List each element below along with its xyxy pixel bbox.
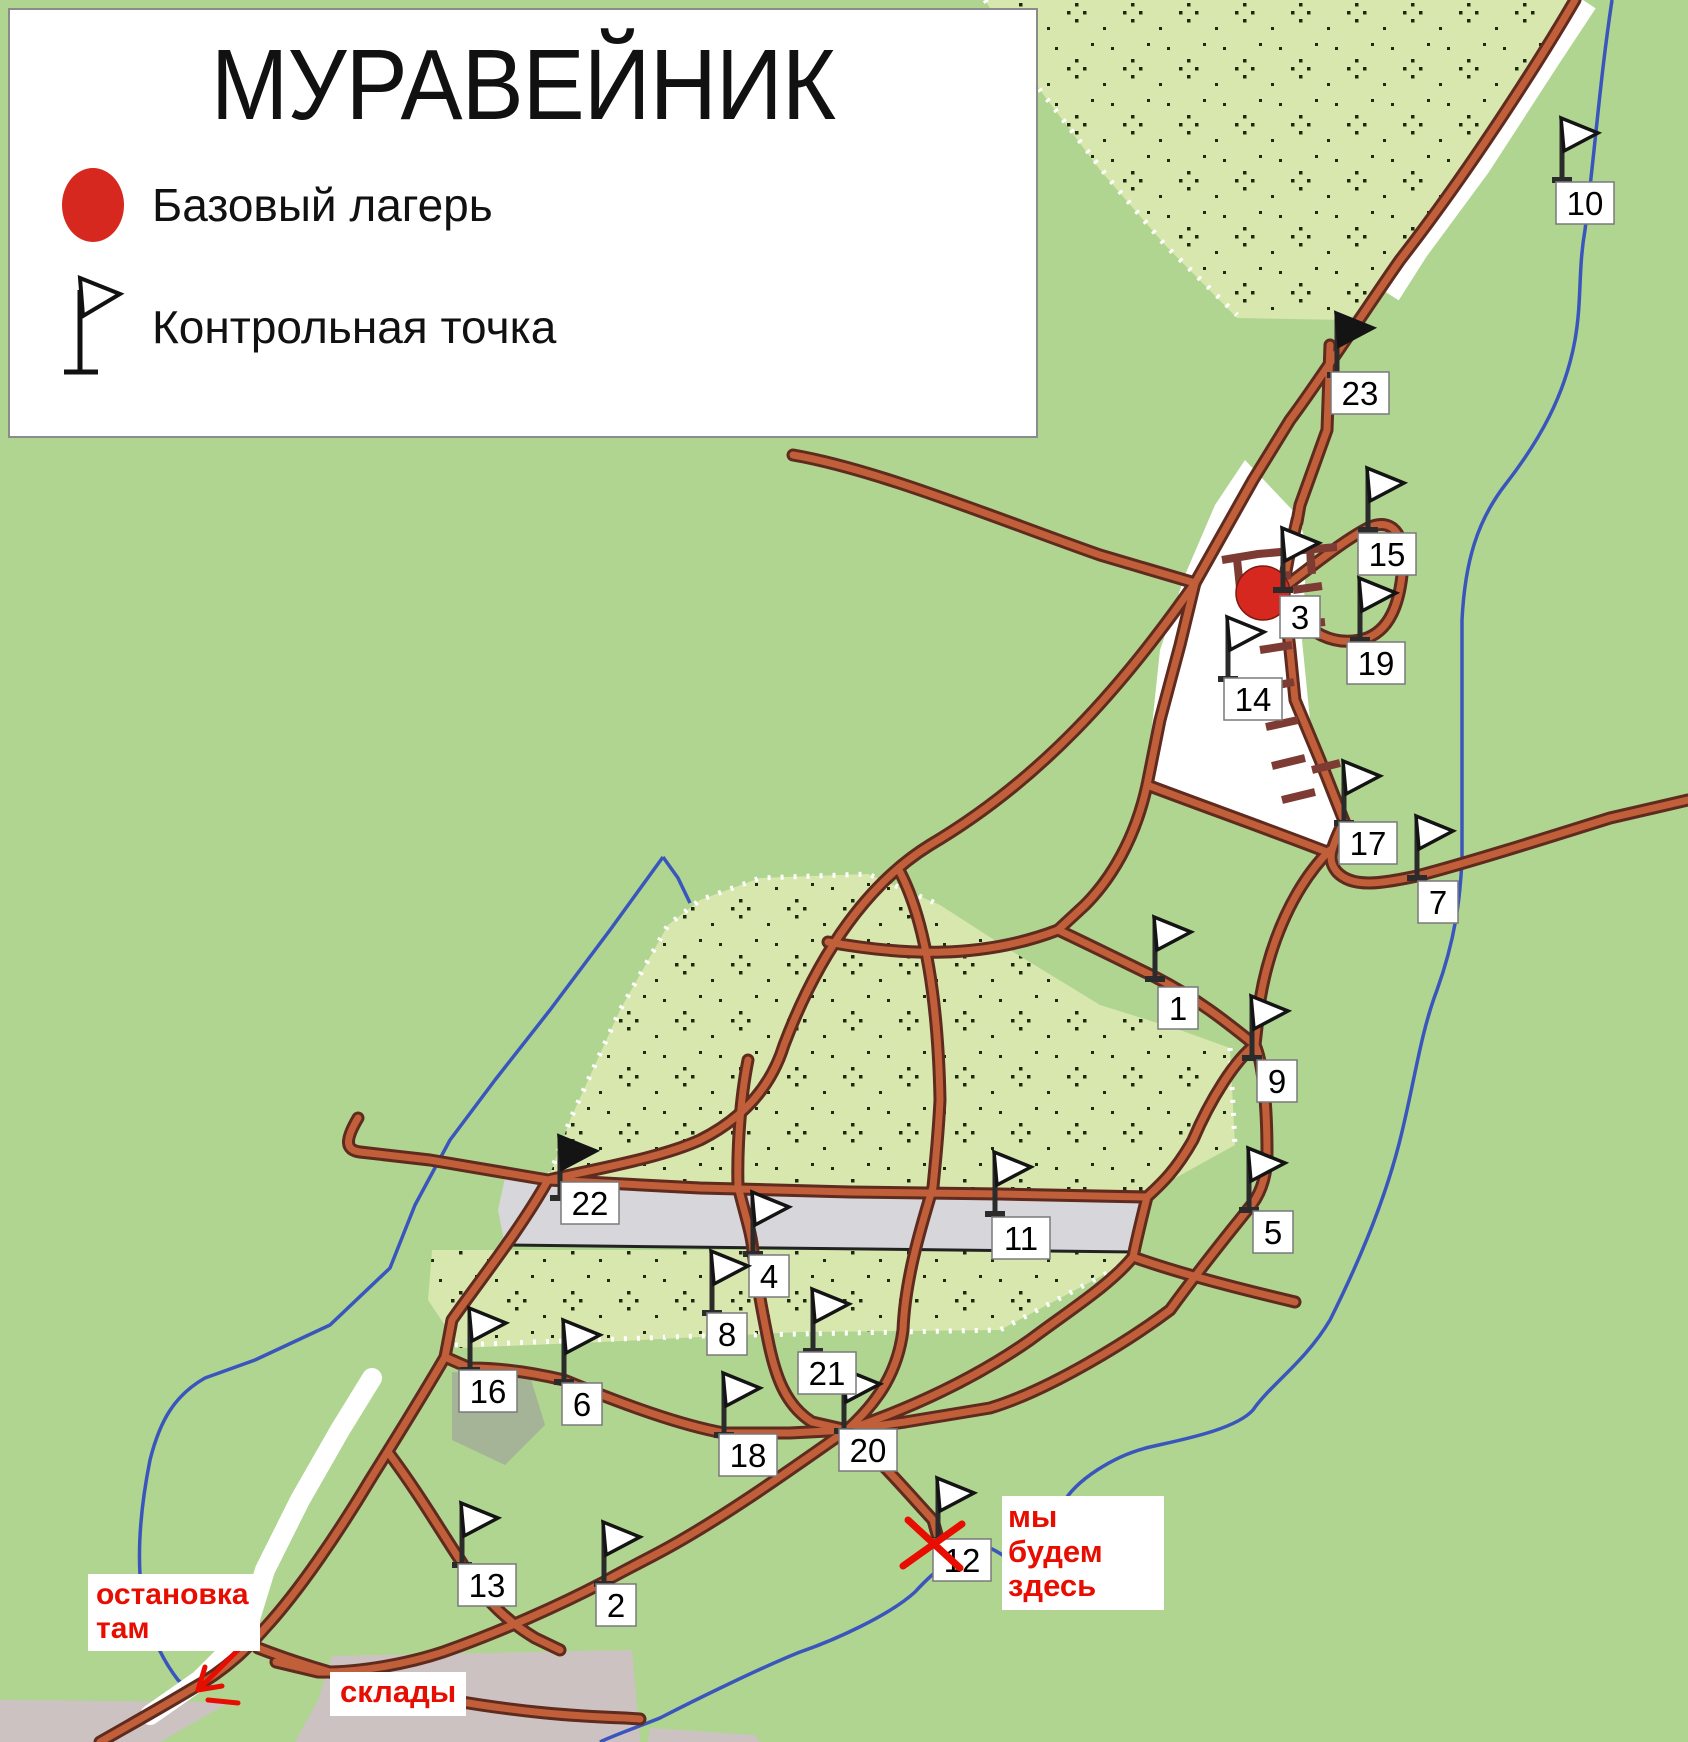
checkpoint-number: 9 xyxy=(1268,1063,1286,1100)
checkpoint-number: 22 xyxy=(572,1185,609,1222)
checkpoint-number: 14 xyxy=(1235,681,1272,718)
base-camp-icon xyxy=(62,168,124,242)
annotation-warehouses: склады xyxy=(330,1672,466,1716)
checkpoint-number: 1 xyxy=(1169,990,1187,1027)
checkpoint-number: 5 xyxy=(1264,1214,1282,1251)
checkpoint-number: 8 xyxy=(718,1316,736,1353)
legend-item-base-camp: Базовый лагерь xyxy=(62,168,493,242)
checkpoint-number: 3 xyxy=(1291,599,1309,636)
checkpoint-number: 4 xyxy=(760,1258,778,1295)
control-point-flag-icon xyxy=(62,272,132,382)
checkpoint-number: 10 xyxy=(1567,185,1604,222)
annotation-bus-stop: остановка там xyxy=(88,1574,260,1651)
checkpoint-number: 7 xyxy=(1429,884,1447,921)
legend-base-camp-label: Базовый лагерь xyxy=(152,178,493,232)
annotation-we-will-be-here: мы будем здесь xyxy=(1002,1496,1164,1610)
map-title: МУРАВЕЙНИК xyxy=(46,28,1000,143)
checkpoint-number: 16 xyxy=(470,1373,507,1410)
checkpoint-number: 2 xyxy=(607,1587,625,1624)
checkpoint-number: 11 xyxy=(1004,1220,1038,1257)
checkpoint-number: 23 xyxy=(1342,375,1379,412)
checkpoint-number: 6 xyxy=(573,1386,591,1423)
legend-control-point-label: Контрольная точка xyxy=(152,300,556,354)
checkpoint-number: 21 xyxy=(809,1355,846,1392)
checkpoint-number: 18 xyxy=(730,1437,767,1474)
checkpoint-number: 19 xyxy=(1358,645,1395,682)
map-legend: МУРАВЕЙНИК Базовый лагерь Контрольная то… xyxy=(8,8,1038,438)
checkpoint-number: 13 xyxy=(469,1567,506,1604)
legend-item-control-point: Контрольная точка xyxy=(62,272,556,382)
checkpoint-number: 17 xyxy=(1350,825,1387,862)
checkpoint-number: 15 xyxy=(1369,536,1406,573)
checkpoint-number: 20 xyxy=(850,1432,887,1469)
